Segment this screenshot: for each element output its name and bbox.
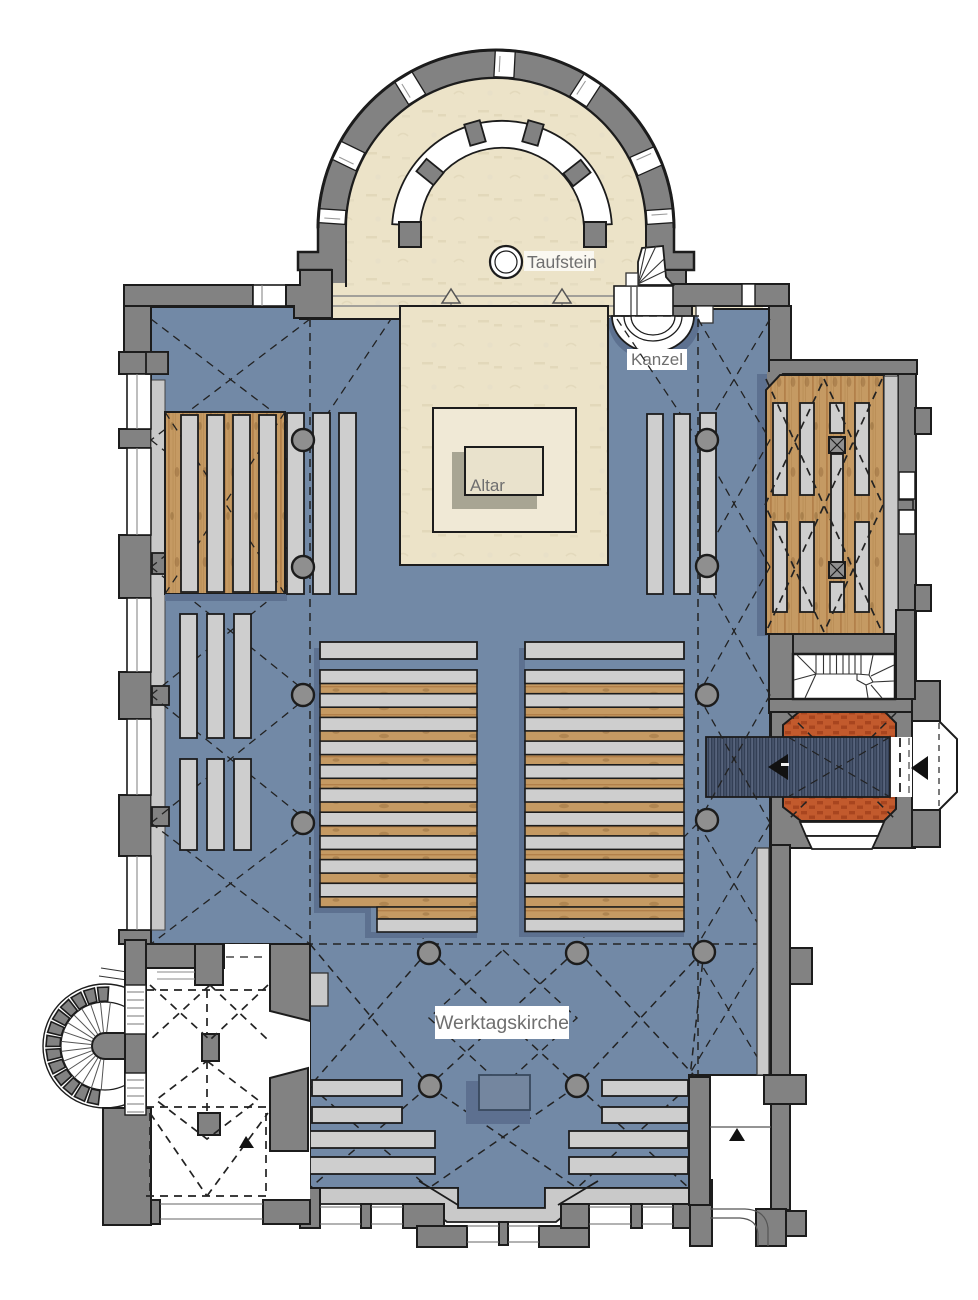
svg-text:Werktagskirche: Werktagskirche	[435, 1012, 569, 1034]
svg-text:Kanzel: Kanzel	[631, 350, 683, 369]
svg-text:Altar: Altar	[470, 476, 505, 495]
svg-text:Taufstein: Taufstein	[527, 252, 597, 272]
